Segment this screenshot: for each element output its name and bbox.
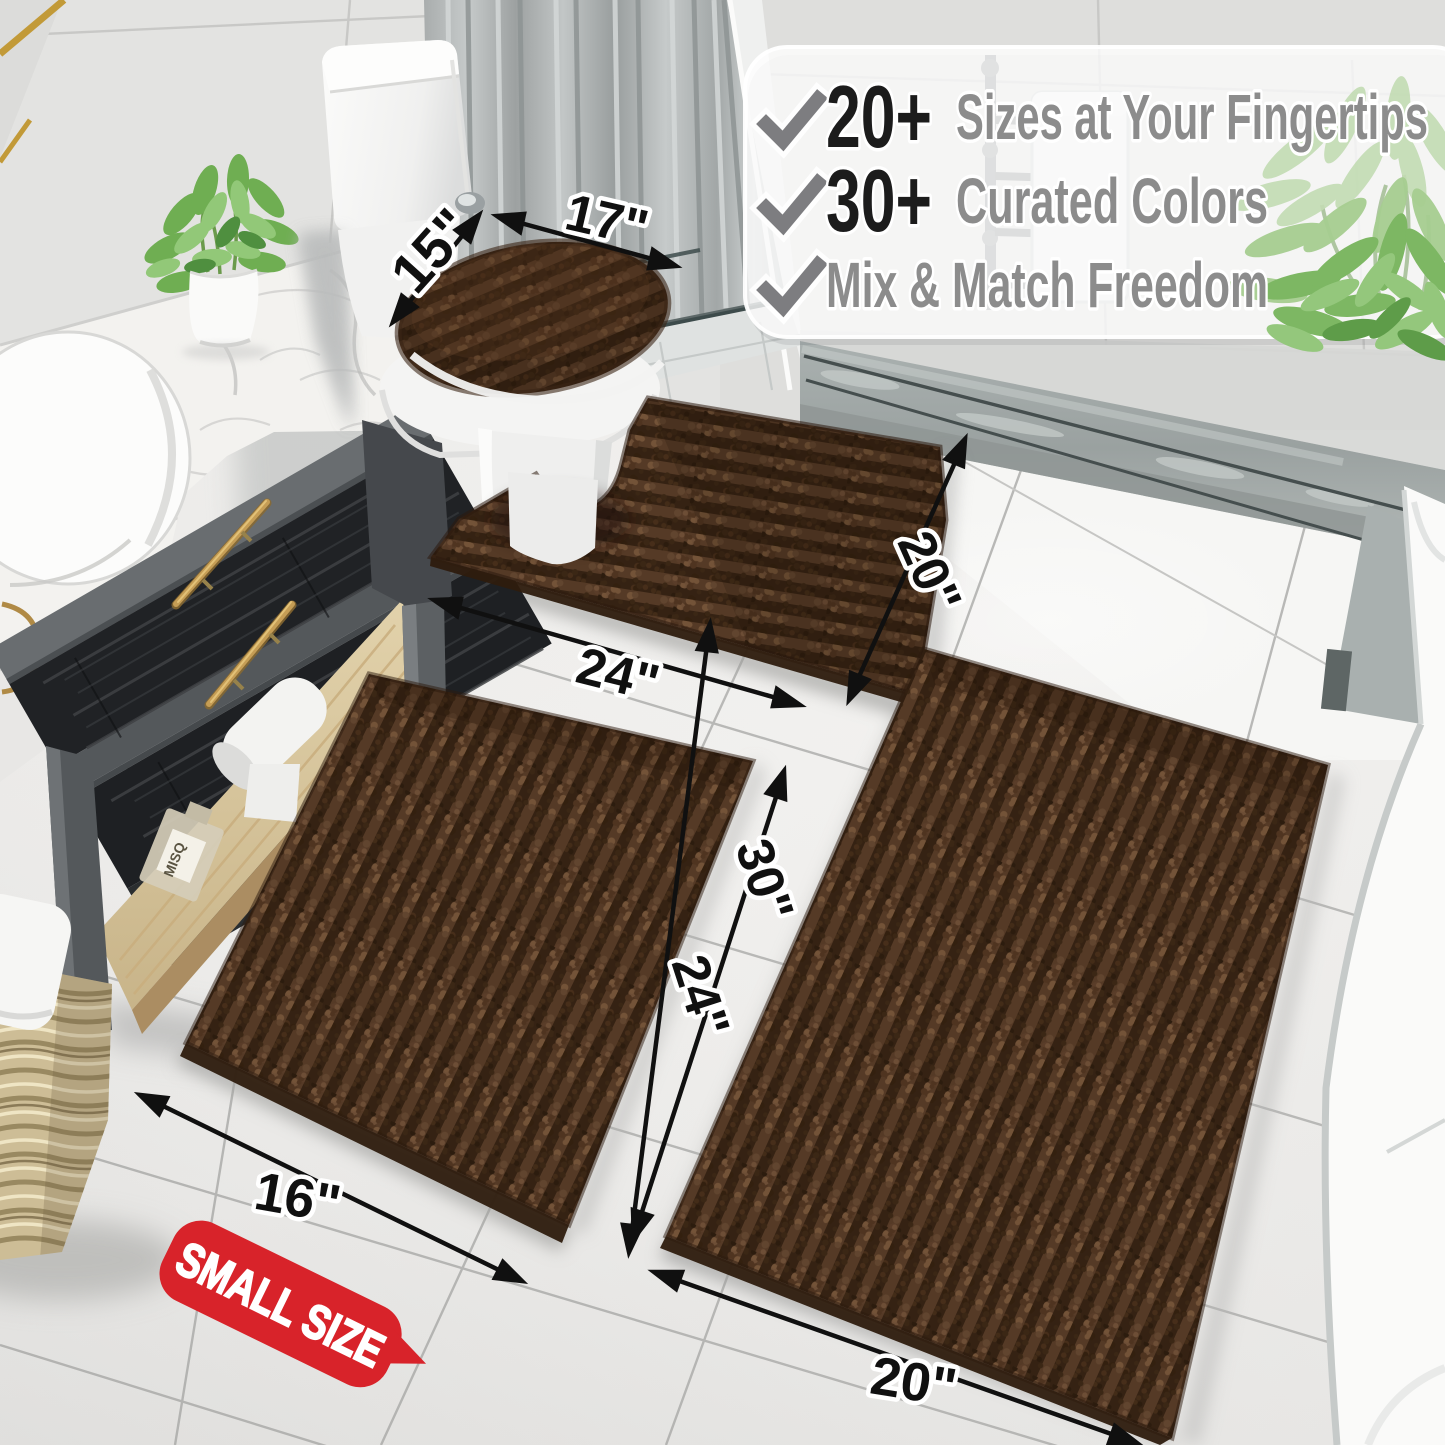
svg-text:Mix & Match Freedom: Mix & Match Freedom xyxy=(826,249,1268,321)
svg-text:30+: 30+ xyxy=(826,151,932,250)
svg-text:Curated Colors: Curated Colors xyxy=(956,165,1268,237)
svg-text:Sizes at Your Fingertips: Sizes at Your Fingertips xyxy=(956,81,1428,153)
